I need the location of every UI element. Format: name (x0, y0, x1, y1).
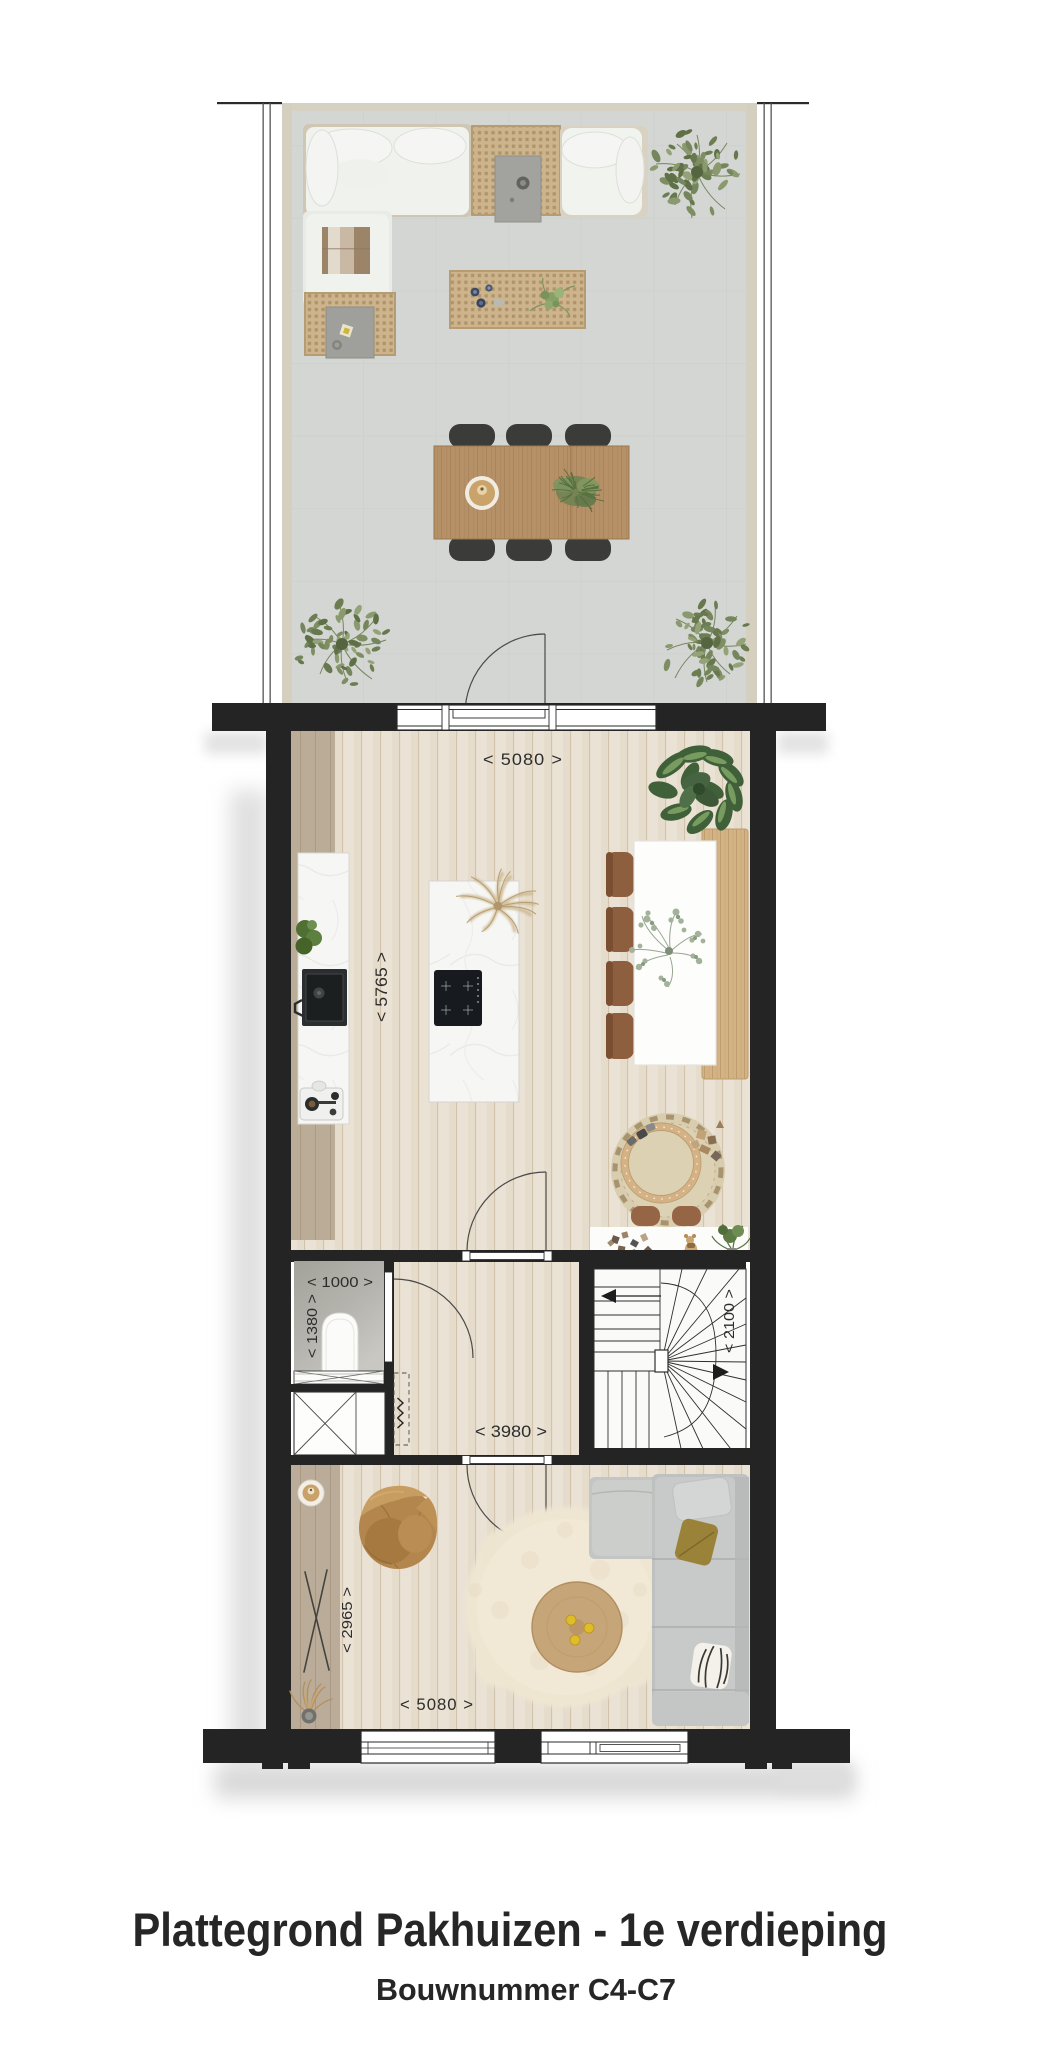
svg-text:< 2100 >: < 2100 > (722, 1289, 738, 1353)
svg-text:Bouwnummer C4-C7: Bouwnummer C4-C7 (376, 1972, 676, 2007)
svg-text:< 5080 >: < 5080 > (483, 750, 563, 769)
svg-text:< 1000 >: < 1000 > (307, 1275, 373, 1291)
svg-text:< 5080 >: < 5080 > (400, 1695, 474, 1714)
svg-text:< 3980 >: < 3980 > (475, 1422, 547, 1441)
svg-text:< 1380 >: < 1380 > (305, 1294, 321, 1358)
svg-text:< 5765 >: < 5765 > (372, 952, 391, 1022)
svg-text:Plattegrond Pakhuizen - 1e ver: Plattegrond Pakhuizen - 1e verdieping (133, 1903, 888, 1956)
svg-text:< 2965 >: < 2965 > (339, 1587, 356, 1653)
